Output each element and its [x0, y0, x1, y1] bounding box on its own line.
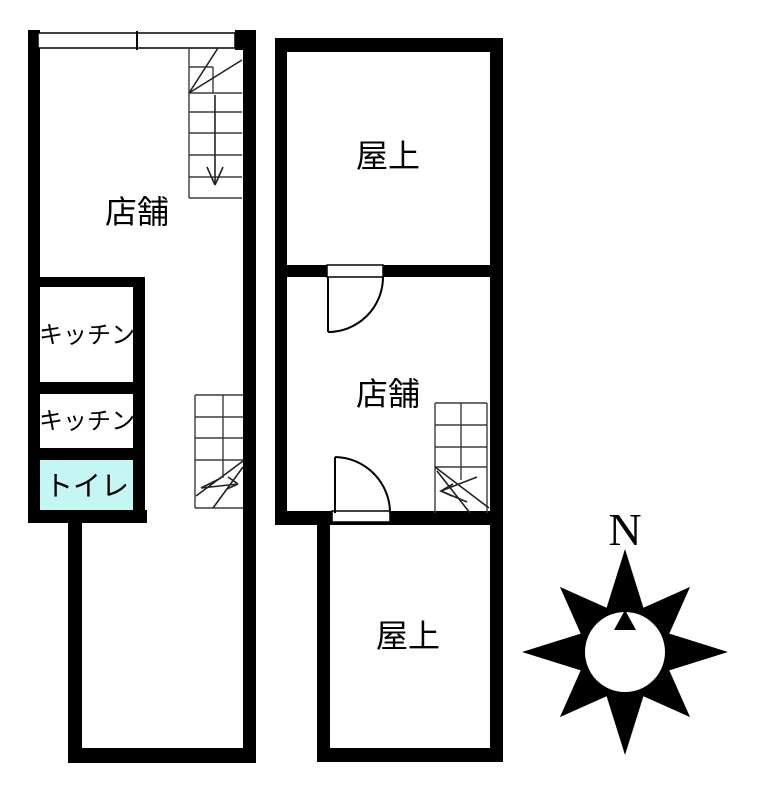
room-label-toilet: トイレ	[45, 470, 129, 503]
wall-lower-left	[68, 515, 82, 763]
wall-bottom	[68, 748, 256, 763]
room-label-rooftop-top: 屋上	[356, 137, 420, 175]
stairs-direction-arrow-icon	[441, 477, 477, 502]
room-label-shop-right: 店舗	[356, 375, 420, 413]
stairs-lower-left	[195, 395, 243, 508]
wall-lower-left	[317, 511, 330, 762]
left-building-walls	[28, 30, 256, 763]
door-opening-top	[327, 265, 383, 277]
stairs-upper-left	[189, 48, 242, 198]
right-building: 屋上 店舗 屋上	[275, 38, 503, 762]
wall-right	[490, 38, 503, 762]
wall-kitchen1-top	[28, 277, 145, 287]
wall-top	[275, 38, 503, 52]
wall-bottom	[317, 748, 503, 762]
room-label-kitchen1: キッチン	[39, 321, 135, 349]
wall-toilet-top	[28, 448, 145, 460]
compass-rose: N	[522, 504, 728, 755]
wall-kitchen-divider	[28, 382, 145, 394]
stairs-direction-arrow-icon	[201, 477, 238, 489]
room-label-shop-left: 店舗	[105, 193, 169, 231]
door-opening-bottom	[332, 511, 390, 522]
stairs-right-building	[435, 403, 489, 513]
door-top	[328, 277, 383, 332]
room-label-rooftop-bottom: 屋上	[376, 617, 440, 655]
wall-rooftop-shop-divider	[275, 265, 503, 277]
compass-north-label: N	[608, 504, 641, 555]
wall-left	[275, 38, 287, 525]
floor-plan-page: 店舗 キッチン キッチン トイレ	[0, 0, 762, 792]
wall-right	[243, 30, 256, 763]
wall-below-toilet	[28, 510, 147, 523]
door-bottom	[335, 457, 390, 513]
floor-plan-canvas: 店舗 キッチン キッチン トイレ	[0, 0, 762, 792]
room-label-kitchen2: キッチン	[39, 407, 135, 435]
left-building: 店舗 キッチン キッチン トイレ	[28, 30, 256, 763]
wall-kitchen-right	[133, 277, 145, 523]
stairs-down-arrow-icon	[207, 95, 223, 185]
